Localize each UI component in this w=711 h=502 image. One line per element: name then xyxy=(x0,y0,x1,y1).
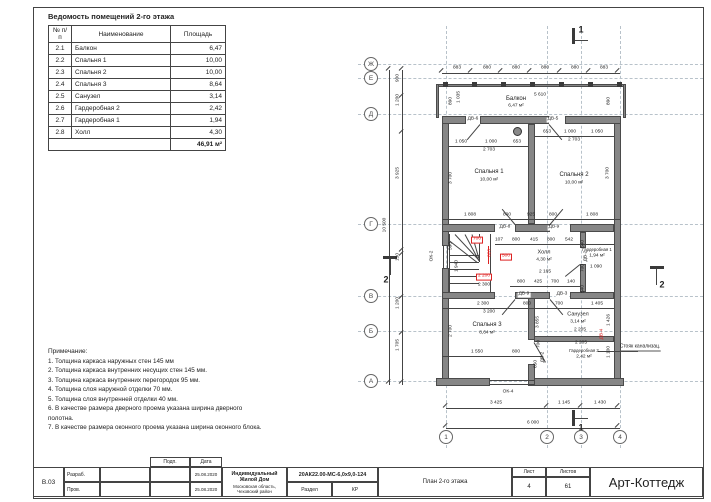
room-area: 4,30 м² xyxy=(536,259,552,264)
table-cell: 1,94 xyxy=(171,115,226,127)
dimension-label: 1 426 xyxy=(608,314,613,326)
dimension-label: 1 550 xyxy=(471,351,483,356)
plan-line xyxy=(442,356,542,357)
table-row: 2.6Гардеробная 22,42 xyxy=(49,103,226,115)
dimension-label: 890 xyxy=(450,97,455,105)
wall-segment xyxy=(565,116,621,124)
table-cell: 8,64 xyxy=(171,79,226,91)
room-label: Гардеробная 2 xyxy=(569,349,599,353)
dimension-label: 880 xyxy=(571,67,579,72)
room-label: Балкон xyxy=(506,96,526,102)
plan-line xyxy=(442,73,620,74)
total-area: 46,91 м² xyxy=(171,139,226,151)
dimension-label: 800 xyxy=(547,239,555,244)
dimension-label: 883 xyxy=(453,67,461,72)
table-cell: 2.2 xyxy=(49,55,72,67)
table-row: 2.2Спальня 110,00 xyxy=(49,55,226,67)
signature-cell-2 xyxy=(150,482,190,497)
sheet-title: План 2-го этажа xyxy=(378,467,512,497)
note-item: 1. Толщина каркаса наружных стен 145 мм xyxy=(48,357,268,366)
dimension-label: 2 703 xyxy=(483,149,495,154)
dimension-label: 2 165 xyxy=(539,271,551,276)
plan-line xyxy=(572,28,575,44)
dimension-label: 800 xyxy=(549,214,557,219)
table-cell: Холл xyxy=(72,127,171,139)
door-label: ДВ-6 xyxy=(467,118,480,123)
note-item: 6. В качестве размера дверного проема ук… xyxy=(48,404,268,423)
door-label: ДВ-4 xyxy=(601,329,606,340)
plan-line xyxy=(443,246,444,268)
door-label: ДВ-2 xyxy=(542,352,547,363)
company-logo: Арт-Коттедж xyxy=(590,467,703,497)
plan-line xyxy=(390,259,391,275)
plan-line xyxy=(449,269,479,270)
drawing-sheet: Ведомость помещений 2-го этажа № п/п Наи… xyxy=(0,0,711,502)
dimension-label: 415 xyxy=(530,239,538,244)
wall-segment xyxy=(436,378,490,386)
project-location: Московская область, Чеховский район xyxy=(223,484,286,494)
rooms-table: Ведомость помещений 2-го этажа № п/п Наи… xyxy=(48,12,226,151)
table-cell: 2.1 xyxy=(49,43,72,55)
col-header-name: Наименование xyxy=(72,26,171,43)
plan-line xyxy=(559,82,564,87)
table-row: 2.8Холл4,30 xyxy=(49,127,226,139)
grid-bubble-Е: Е xyxy=(364,71,378,85)
dimension-label: 1 050 xyxy=(455,141,467,146)
note-item: 4. Толщина слоя наружной отделки 70 мм. xyxy=(48,385,268,394)
plan-line xyxy=(490,384,534,385)
room-area: 1,94 м² xyxy=(589,255,605,260)
plan-line xyxy=(449,283,479,284)
plan-line xyxy=(575,40,588,41)
dimension-label: 540 xyxy=(582,285,587,293)
rooms-table-title: Ведомость помещений 2-го этажа xyxy=(48,12,226,21)
table-cell: 2.3 xyxy=(49,67,72,79)
plan-line xyxy=(449,276,479,277)
table-row: 2.7Гардеробная 11,94 xyxy=(49,115,226,127)
table-cell: 2.7 xyxy=(49,115,72,127)
dimension-label: 150 xyxy=(397,253,402,261)
section-marker-label: 1 xyxy=(578,26,583,35)
dimension-label: 3 700 xyxy=(607,167,612,179)
role-checker: Пров. xyxy=(64,482,100,497)
chimney-marker xyxy=(513,127,522,136)
dimension-label: 800 xyxy=(503,214,511,219)
dimension-label: 700 xyxy=(471,237,483,244)
dimension-label: 3 855 xyxy=(537,316,542,328)
project-name: Индивидуальный Жилой Дом xyxy=(223,471,286,483)
window-label: ОК-2 xyxy=(431,251,436,262)
table-cell: 4,30 xyxy=(171,127,226,139)
door-label: ДВ-2 xyxy=(585,251,590,262)
dimension-label: 1 405 xyxy=(591,303,603,308)
sheets-total: 61 xyxy=(546,477,590,497)
dimension-label: 925 xyxy=(527,214,535,219)
table-cell: 2.4 xyxy=(49,79,72,91)
name-cell-1 xyxy=(100,467,150,482)
dimension-label: 653 xyxy=(513,141,521,146)
plan-line xyxy=(443,82,448,87)
dimension-label: 542 xyxy=(565,239,573,244)
dimension-label: 500 xyxy=(500,254,512,261)
dimension-label: 1 000 xyxy=(564,131,576,136)
dimension-label: 883 xyxy=(600,67,608,72)
date-header-cell: Дата xyxy=(190,457,222,467)
notes-list: 1. Толщина каркаса наружных стен 145 мм2… xyxy=(48,357,268,433)
dimension-label: 2 700 xyxy=(450,325,455,337)
sheet-code: В.03 xyxy=(33,467,64,497)
section-label: Раздел xyxy=(287,482,332,497)
plan-line xyxy=(358,114,703,115)
dimension-label: 900 xyxy=(397,74,402,82)
table-cell: Спальня 2 xyxy=(72,67,171,79)
dimension-label: 2 205 xyxy=(575,342,587,347)
wall-segment xyxy=(528,124,535,224)
project-cell: Индивидуальный Жилой Дом Московская обла… xyxy=(222,467,287,497)
dimension-label: 700 xyxy=(551,281,559,286)
table-cell: Балкон xyxy=(72,43,171,55)
dimension-label: 107 xyxy=(495,239,503,244)
grid-bubble-4: 4 xyxy=(613,430,627,444)
table-total-row: 46,91 м² xyxy=(49,139,226,151)
plan-line xyxy=(446,408,620,409)
plan-line xyxy=(501,82,506,87)
plan-line xyxy=(588,82,593,87)
grid-bubble-В: В xyxy=(364,289,378,303)
table-cell: 2.6 xyxy=(49,103,72,115)
dimension-label: 140 xyxy=(567,281,575,286)
dimension-label: 3 925 xyxy=(397,167,402,179)
table-cell: 2.5 xyxy=(49,91,72,103)
dimension-label: 3 200 xyxy=(483,311,495,316)
col-header-num: № п/п xyxy=(49,26,72,43)
plan-line xyxy=(442,219,620,220)
plan-line xyxy=(490,380,534,381)
room-label: Спальня 1 xyxy=(474,169,503,175)
grid-bubble-2: 2 xyxy=(540,430,554,444)
notes: Примечание: 1. Толщина каркаса наружных … xyxy=(48,348,268,433)
wall-segment xyxy=(623,84,626,118)
dimension-label: 800 xyxy=(512,351,520,356)
table-row: 2.3Спальня 210,00 xyxy=(49,67,226,79)
dimension-label: 5 610 xyxy=(534,94,546,99)
room-area: 3,14 м² xyxy=(570,321,586,326)
dimension-label: 1 050 xyxy=(591,131,603,136)
plan-line xyxy=(530,82,535,87)
table-row: 2.5Санузел3,14 xyxy=(49,91,226,103)
dimension-label: 1 035 xyxy=(458,91,463,103)
dimension-label: 2 300 xyxy=(478,284,490,289)
grid-bubble-Б: Б xyxy=(364,324,378,338)
dimension-label: 1 100 xyxy=(608,346,613,358)
plan-line xyxy=(446,428,620,429)
wall-segment xyxy=(436,84,439,118)
dimension-label: 2 300 xyxy=(477,303,489,308)
plan-line xyxy=(575,418,588,419)
table-cell: 6,47 xyxy=(171,43,226,55)
dimension-label: 820 xyxy=(489,249,494,257)
door-label: ДВ-5 xyxy=(547,118,560,123)
room-label: Спальня 3 xyxy=(472,322,501,328)
dimension-label: 1 940 xyxy=(456,260,461,272)
table-row: 2.1Балкон6,47 xyxy=(49,43,226,55)
table-cell: Спальня 3 xyxy=(72,79,171,91)
room-area: 6,47 м² xyxy=(508,105,524,110)
dimension-label: 1 090 xyxy=(590,266,602,271)
grid-bubble-3: 3 xyxy=(574,430,588,444)
table-cell: Спальня 1 xyxy=(72,55,171,67)
dimension-label: 425 xyxy=(534,281,542,286)
room-area: 2,42 м² xyxy=(576,356,592,361)
dimension-label: 3 700 xyxy=(450,172,455,184)
wall-segment xyxy=(480,116,549,124)
dimension-label: 880 xyxy=(541,67,549,72)
dimension-label: 2 703 xyxy=(568,139,580,144)
table-cell: 2,42 xyxy=(171,103,226,115)
plan-line xyxy=(510,286,580,287)
dimension-label: 700 xyxy=(538,340,543,348)
note-item: 5. Толщина слоя внутренней отделки 40 мм… xyxy=(48,395,268,404)
plan-line xyxy=(495,244,614,245)
wall-segment xyxy=(442,116,466,124)
note-item: 2. Толщина каркаса внутренних несущих ст… xyxy=(48,366,268,375)
dimension-label: 10 500 xyxy=(384,218,389,233)
dimension-label: 880 xyxy=(512,67,520,72)
sheet-number: 4 xyxy=(512,477,546,497)
table-cell: Гардеробная 2 xyxy=(72,103,171,115)
grid-bubble-Д: Д xyxy=(364,107,378,121)
plan-line xyxy=(389,70,390,385)
table-cell: 10,00 xyxy=(171,67,226,79)
room-label: Холл xyxy=(538,250,551,256)
dimension-label: 700 xyxy=(582,264,587,272)
dimension-label: 650 xyxy=(535,360,540,368)
plan-line xyxy=(358,64,703,65)
plan-line xyxy=(472,82,477,87)
dimension-label: 800 xyxy=(523,303,531,308)
note-item: 7. В качестве размера оконного проема ук… xyxy=(48,423,268,432)
dimension-label: 6 000 xyxy=(527,422,539,427)
section-marker-label: 2 xyxy=(383,276,388,285)
grid-bubble-Ж: Ж xyxy=(364,57,378,71)
dimension-label: 590 xyxy=(450,242,455,250)
plan-line xyxy=(402,70,403,385)
date-2: 25.08.2020 xyxy=(190,482,222,497)
plan-line xyxy=(358,78,703,79)
room-label: Спальня 2 xyxy=(559,172,588,178)
dimension-label: 1 808 xyxy=(586,214,598,219)
table-cell: Санузел xyxy=(72,91,171,103)
wall-segment xyxy=(442,292,495,299)
annotation-sewer-stack: Стояк канализац. xyxy=(620,345,661,352)
grid-bubble-1: 1 xyxy=(439,430,453,444)
dimension-label: 1 705 xyxy=(397,339,402,351)
dimension-label: 1 145 xyxy=(558,402,570,407)
dimension-label: 1 000 xyxy=(485,141,497,146)
door-label: ДВ-9 xyxy=(548,226,561,231)
dimension-label: 1 430 xyxy=(594,402,606,407)
door-label: ДВ-3 xyxy=(556,293,569,298)
sheet-label: Лист xyxy=(512,467,546,477)
plan-line xyxy=(650,266,664,269)
section-value: КР xyxy=(332,482,378,497)
title-block: Подп. Дата В.03 Разраб. Пров. 25.08.2020… xyxy=(33,457,703,497)
plan-line xyxy=(617,82,622,87)
wall-segment xyxy=(534,378,624,386)
dimension-label: 1 808 xyxy=(464,214,476,219)
col-header-area: Площадь xyxy=(171,26,226,43)
room-label: Санузел xyxy=(567,312,588,318)
table-cell: 10,00 xyxy=(171,55,226,67)
note-item: 3. Толщина каркаса внутренних перегородо… xyxy=(48,376,268,385)
section-marker-label: 2 xyxy=(659,281,664,290)
sheets-label: Листов xyxy=(546,467,590,477)
door-label: ДВ-8 xyxy=(499,226,512,231)
signature-cell-1 xyxy=(150,467,190,482)
notes-title: Примечание: xyxy=(48,348,268,355)
dimension-label: 700 xyxy=(555,303,563,308)
sig-header-cell: Подп. xyxy=(150,457,190,467)
table-cell: 3,14 xyxy=(171,91,226,103)
wall-segment xyxy=(570,292,614,299)
door-label: ДВ-9 xyxy=(518,293,531,298)
dimension-label: 2 200 xyxy=(476,274,492,281)
dimension-label: 880 xyxy=(483,67,491,72)
wall-segment xyxy=(515,224,550,232)
date-1: 25.08.2020 xyxy=(190,467,222,482)
rooms-table-grid: № п/п Наименование Площадь 2.1Балкон6,47… xyxy=(48,25,226,151)
room-area: 10,00 м² xyxy=(480,179,498,184)
doc-code: 20АК22.00-МС-6,0х9,0-124 xyxy=(287,467,378,482)
dimension-label: 800 xyxy=(512,239,520,244)
table-cell: 2.8 xyxy=(49,127,72,139)
room-area: 10,00 м² xyxy=(565,182,583,187)
plan-line xyxy=(656,269,657,285)
wall-segment xyxy=(442,224,495,232)
role-developer: Разраб. xyxy=(64,467,100,482)
grid-bubble-А: А xyxy=(364,374,378,388)
table-cell: Гардеробная 1 xyxy=(72,115,171,127)
dimension-label: 800 xyxy=(517,281,525,286)
dimension-label: 3 425 xyxy=(490,402,502,407)
grid-bubble-Г: Г xyxy=(364,217,378,231)
name-cell-2 xyxy=(100,482,150,497)
wall-segment xyxy=(570,224,614,232)
window-label: ОК-4 xyxy=(503,391,514,396)
room-area: 8,64 м² xyxy=(479,332,495,337)
dimension-label: 1 200 xyxy=(397,297,402,309)
dimension-label: 1 200 xyxy=(397,94,402,106)
dimension-label: 2 205 xyxy=(574,329,586,334)
table-row: 2.4Спальня 38,64 xyxy=(49,79,226,91)
plan-line xyxy=(490,234,491,292)
dimension-label: 890 xyxy=(608,97,613,105)
dimension-label: 653 xyxy=(543,131,551,136)
plan-line xyxy=(442,308,614,309)
dimension-label: 540 xyxy=(582,240,587,248)
plan-line xyxy=(449,262,479,263)
